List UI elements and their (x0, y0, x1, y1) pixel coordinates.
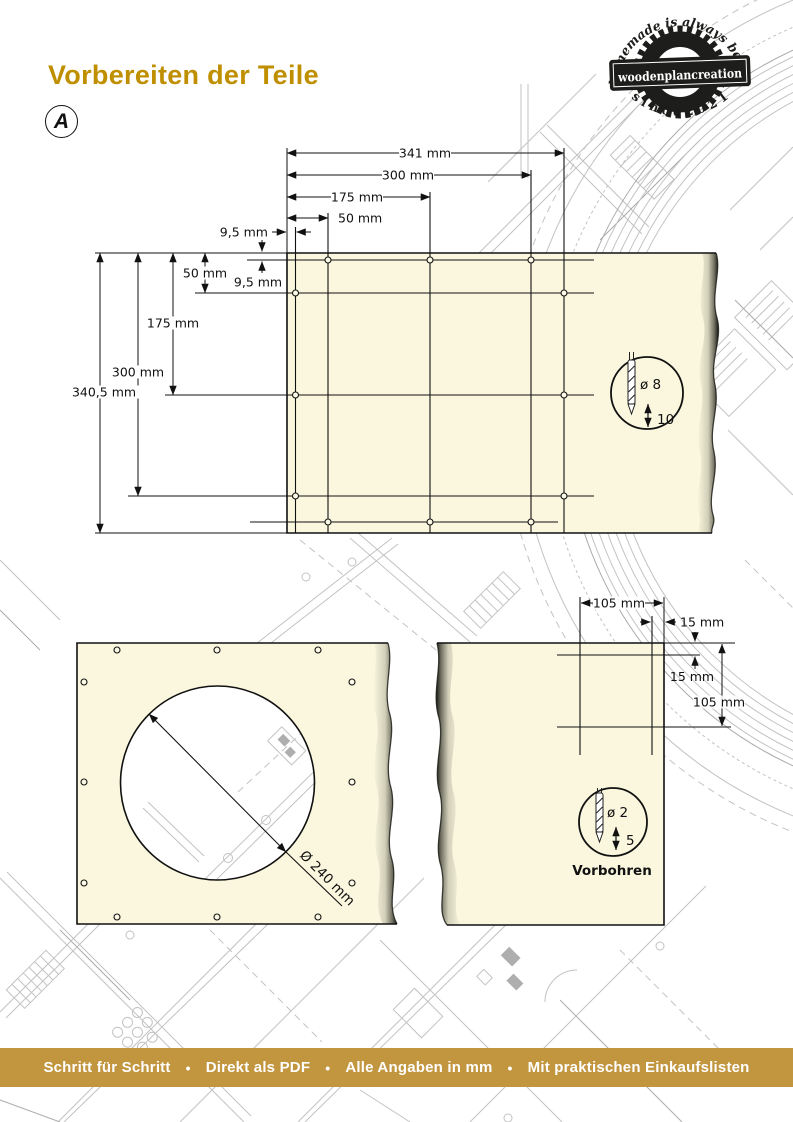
drawing-top-panel: 341 mm 300 mm 175 mm 50 mm 9,5 mm 50 mm … (70, 146, 719, 534)
dim-br-top-15: 15 mm (680, 615, 724, 630)
dim-br-side-105: 105 mm (693, 695, 745, 710)
dim-br-side-15: 15 mm (670, 669, 714, 684)
footer-bullet: • (310, 1060, 345, 1076)
footer-bullet: • (171, 1060, 206, 1076)
dim-width-300: 300 mm (382, 168, 434, 183)
technical-drawings: 341 mm 300 mm 175 mm 50 mm 9,5 mm 50 mm … (0, 0, 793, 1122)
drill-2-diameter: ø 2 (607, 805, 628, 821)
dim-width-total: 341 mm (399, 146, 451, 161)
panel-top-extension-lines (95, 148, 287, 533)
drawing-bottom-left-panel: Ø 240 mm (77, 643, 397, 924)
footer-bullet: • (493, 1060, 528, 1076)
dim-top-edge-offset: 9,5 mm (220, 225, 268, 240)
footer-bar: Schritt für Schritt • Direkt als PDF • A… (0, 1048, 793, 1087)
dim-left-edge-offset: 9,5 mm (234, 275, 282, 290)
footer-item-3: Alle Angaben in mm (345, 1059, 492, 1076)
plan-page: Vorbereiten der Teile A homemade is alwa… (0, 0, 793, 1122)
dim-width-175: 175 mm (331, 190, 383, 205)
drill-8-depth: 10 (657, 412, 674, 428)
predrill-caption: Vorbohren (572, 863, 652, 879)
dim-height-175: 175 mm (147, 316, 199, 331)
drill-2-depth: 5 (626, 833, 635, 849)
drill-bit-icon (628, 352, 635, 414)
dim-height-total: 340,5 mm (72, 385, 136, 400)
drill-8-diameter: ø 8 (640, 377, 661, 393)
footer-item-4: Mit praktischen Einkaufslisten (528, 1059, 750, 1076)
panel-br-fill (436, 643, 664, 925)
panel-top-fill (287, 253, 719, 533)
drill-bit-icon-small (596, 788, 603, 842)
dim-width-50: 50 mm (338, 211, 382, 226)
drawing-bottom-right-panel: 105 mm 15 mm 15 mm 105 mm ø 2 5 (436, 596, 745, 926)
footer-item-1: Schritt für Schritt (43, 1059, 170, 1076)
dim-br-top-105: 105 mm (593, 596, 645, 611)
dim-height-50: 50 mm (183, 266, 227, 281)
footer-item-2: Direkt als PDF (206, 1059, 311, 1076)
dim-height-300: 300 mm (112, 365, 164, 380)
